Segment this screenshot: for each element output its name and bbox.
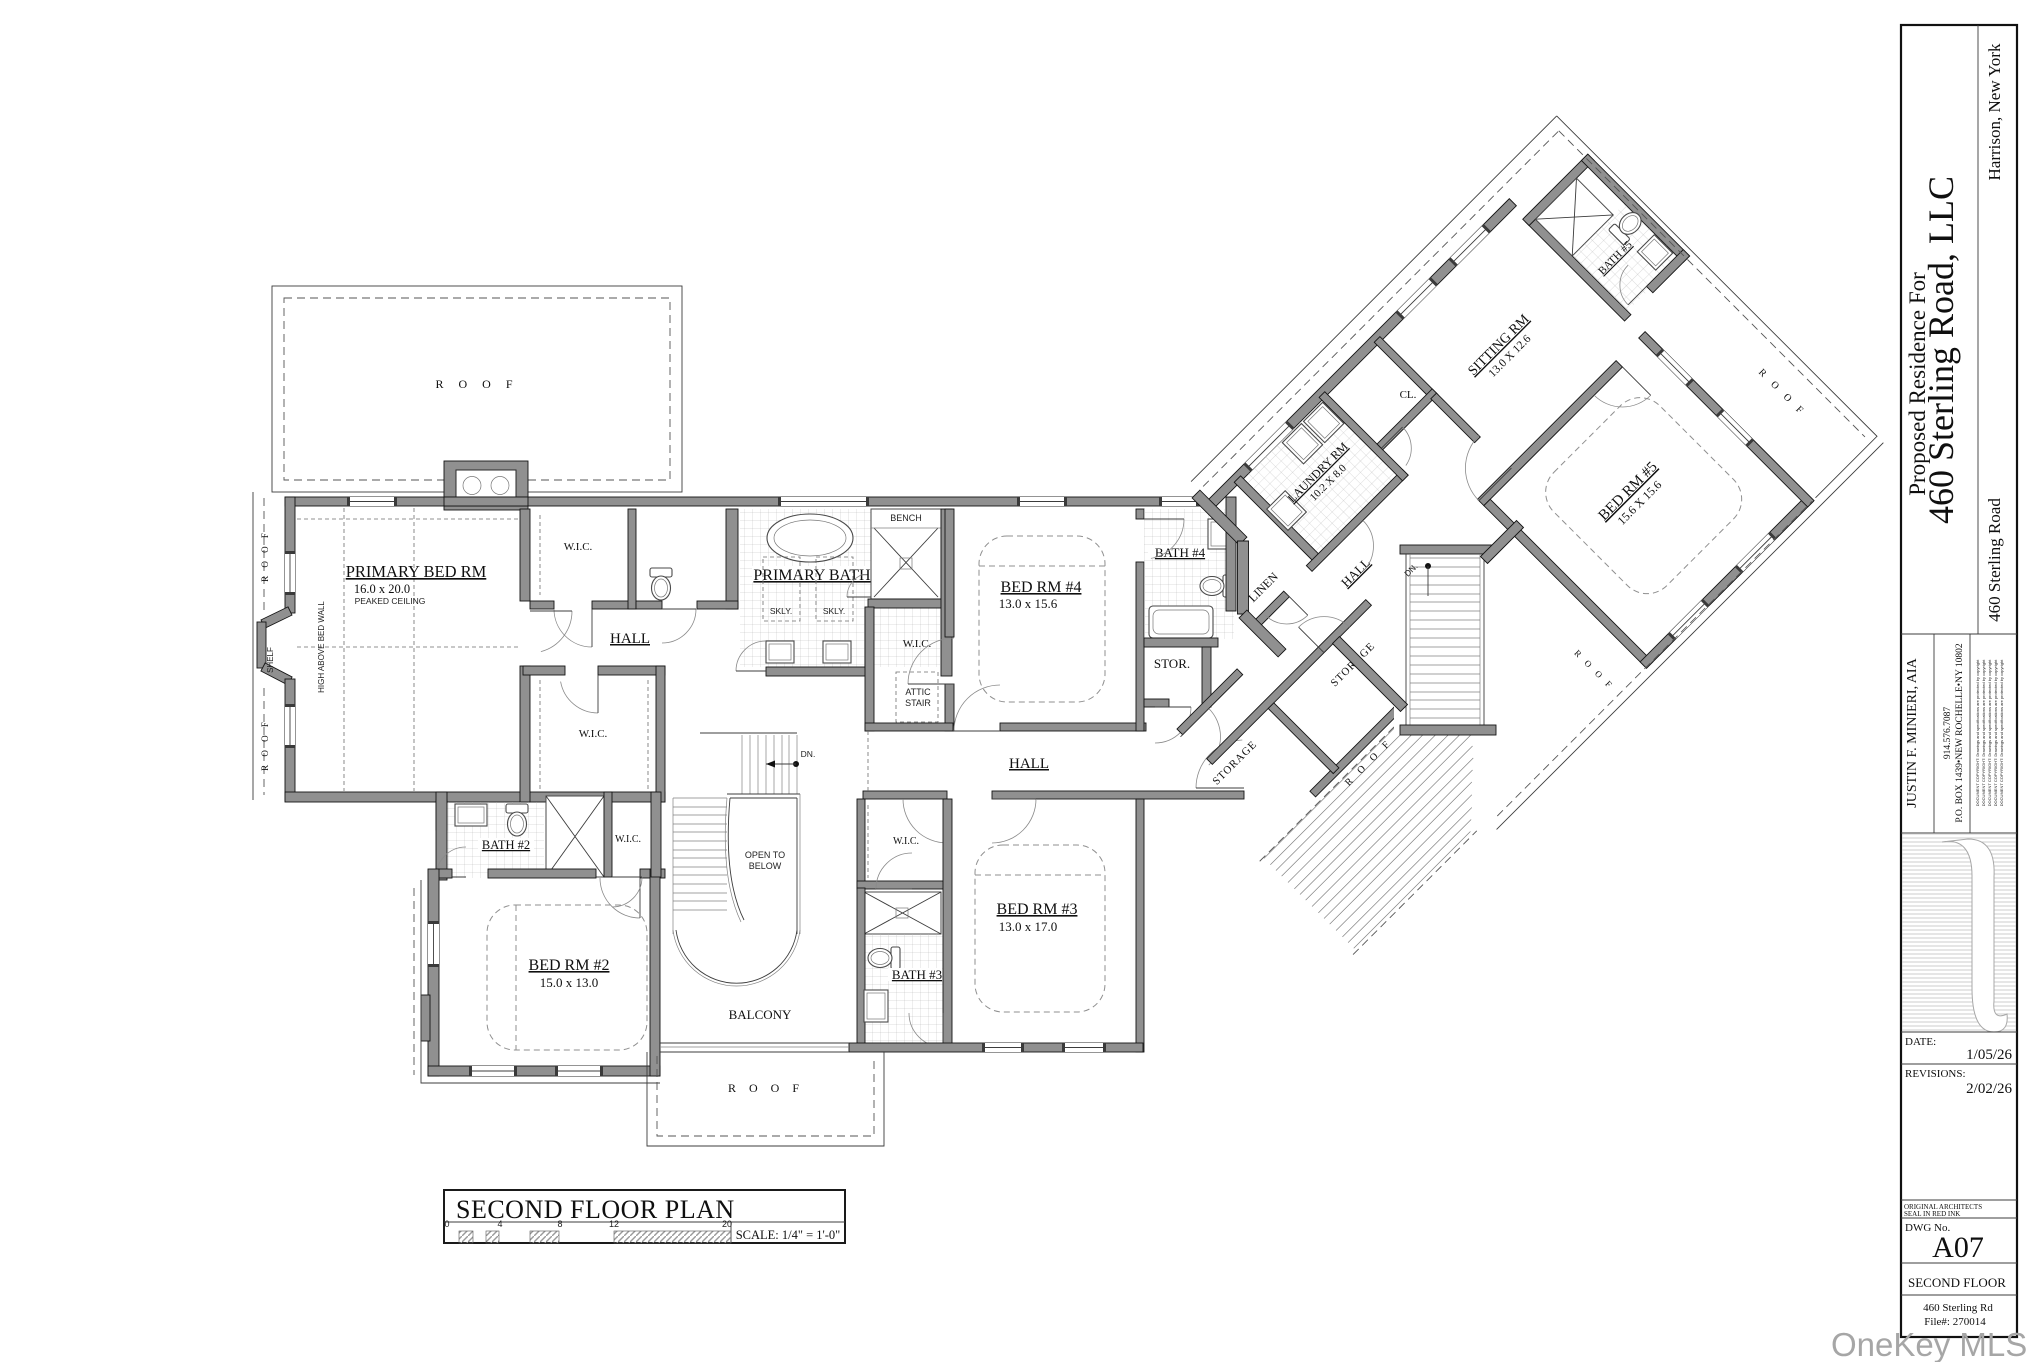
svg-text:460 Sterling Rd: 460 Sterling Rd xyxy=(1923,1302,1993,1314)
svg-text:JUSTIN F. MINIERI, AIA: JUSTIN F. MINIERI, AIA xyxy=(1905,657,1920,807)
svg-text:SEAL IN RED INK: SEAL IN RED INK xyxy=(1904,1210,1960,1218)
svg-text:STOR.: STOR. xyxy=(1154,656,1190,671)
svg-text:SKLY.: SKLY. xyxy=(823,606,845,616)
svg-text:CL.: CL. xyxy=(1400,389,1417,401)
svg-text:REVISIONS:: REVISIONS: xyxy=(1905,1068,1966,1080)
svg-text:W.I.C.: W.I.C. xyxy=(893,836,919,847)
svg-text:PEAKED CEILING: PEAKED CEILING xyxy=(355,596,426,606)
svg-text:A07: A07 xyxy=(1932,1231,1984,1264)
svg-text:W.I.C.: W.I.C. xyxy=(564,541,593,553)
svg-text:16.0 x 20.0: 16.0 x 20.0 xyxy=(354,582,410,596)
svg-text:BALCONY: BALCONY xyxy=(729,1007,792,1022)
svg-text:4: 4 xyxy=(497,1219,502,1229)
svg-text:1/05/26: 1/05/26 xyxy=(1966,1047,2012,1063)
svg-text:HALL: HALL xyxy=(610,631,650,647)
svg-text:DOCUMENT COPYRIGHT: Drawings a: DOCUMENT COPYRIGHT: Drawings and specifi… xyxy=(1981,659,1986,807)
svg-text:R O O F: R O O F xyxy=(260,530,270,582)
svg-text:OPEN TO: OPEN TO xyxy=(745,850,785,860)
svg-text:0: 0 xyxy=(444,1219,449,1229)
svg-text:BATH #3: BATH #3 xyxy=(892,967,942,982)
svg-text:DOCUMENT COPYRIGHT: Drawings a: DOCUMENT COPYRIGHT: Drawings and specifi… xyxy=(1993,659,1998,807)
svg-text:R O O F: R O O F xyxy=(260,719,270,771)
svg-text:460 Sterling Road: 460 Sterling Road xyxy=(1985,498,2004,622)
svg-text:HALL: HALL xyxy=(1009,756,1049,772)
svg-text:ATTIC: ATTIC xyxy=(905,687,931,697)
svg-text:BED RM #4: BED RM #4 xyxy=(1001,579,1082,596)
svg-text:W.I.C.: W.I.C. xyxy=(615,834,641,845)
svg-text:BATH #2: BATH #2 xyxy=(482,838,530,852)
svg-text:OneKey MLS: OneKey MLS xyxy=(1831,1326,2027,1362)
svg-text:SKLY.: SKLY. xyxy=(770,606,792,616)
svg-text:P.O. BOX 1439•NEW ROCHELLE•NY: P.O. BOX 1439•NEW ROCHELLE•NY 10802 xyxy=(1955,643,1965,822)
svg-text:DATE:: DATE: xyxy=(1905,1036,1936,1048)
svg-text:914.576.7087: 914.576.7087 xyxy=(1943,707,1953,760)
svg-text:SCALE: 1/4" = 1'-0": SCALE: 1/4" = 1'-0" xyxy=(736,1228,841,1242)
svg-text:SECOND FLOOR: SECOND FLOOR xyxy=(1908,1275,2006,1290)
svg-text:BED RM #2: BED RM #2 xyxy=(529,957,610,974)
svg-text:15.0 x 13.0: 15.0 x 13.0 xyxy=(540,975,599,990)
svg-text:BED RM #3: BED RM #3 xyxy=(997,901,1078,918)
svg-text:DOCUMENT COPYRIGHT: Drawings a: DOCUMENT COPYRIGHT: Drawings and specifi… xyxy=(1999,659,2004,807)
svg-text:SHELF: SHELF xyxy=(266,647,275,673)
svg-text:W.I.C.: W.I.C. xyxy=(579,728,608,740)
svg-text:R O O F: R O O F xyxy=(728,1081,804,1095)
svg-text:Harrison, New York: Harrison, New York xyxy=(1985,43,2004,180)
svg-text:20: 20 xyxy=(722,1219,732,1229)
svg-text:DOCUMENT COPYRIGHT: Drawings a: DOCUMENT COPYRIGHT: Drawings and specifi… xyxy=(1975,659,1980,807)
svg-text:12: 12 xyxy=(609,1219,619,1229)
svg-text:8: 8 xyxy=(557,1219,562,1229)
svg-text:W.I.C.: W.I.C. xyxy=(903,638,932,650)
svg-text:DN.: DN. xyxy=(801,749,816,759)
svg-text:13.0 x 15.6: 13.0 x 15.6 xyxy=(999,596,1058,611)
svg-text:PRIMARY BED RM: PRIMARY BED RM xyxy=(346,562,487,581)
svg-text:BELOW: BELOW xyxy=(749,861,782,871)
svg-text:R O O F: R O O F xyxy=(435,377,518,391)
svg-text:BENCH: BENCH xyxy=(890,513,922,523)
svg-text:DOCUMENT COPYRIGHT: Drawings a: DOCUMENT COPYRIGHT: Drawings and specifi… xyxy=(1987,659,1992,807)
svg-text:STAIR: STAIR xyxy=(905,698,931,708)
svg-text:BATH #4: BATH #4 xyxy=(1155,545,1206,560)
svg-text:2/02/26: 2/02/26 xyxy=(1966,1081,2012,1097)
svg-text:460 Sterling Road, LLC: 460 Sterling Road, LLC xyxy=(1921,176,1961,524)
svg-text:13.0 x 17.0: 13.0 x 17.0 xyxy=(999,919,1058,934)
